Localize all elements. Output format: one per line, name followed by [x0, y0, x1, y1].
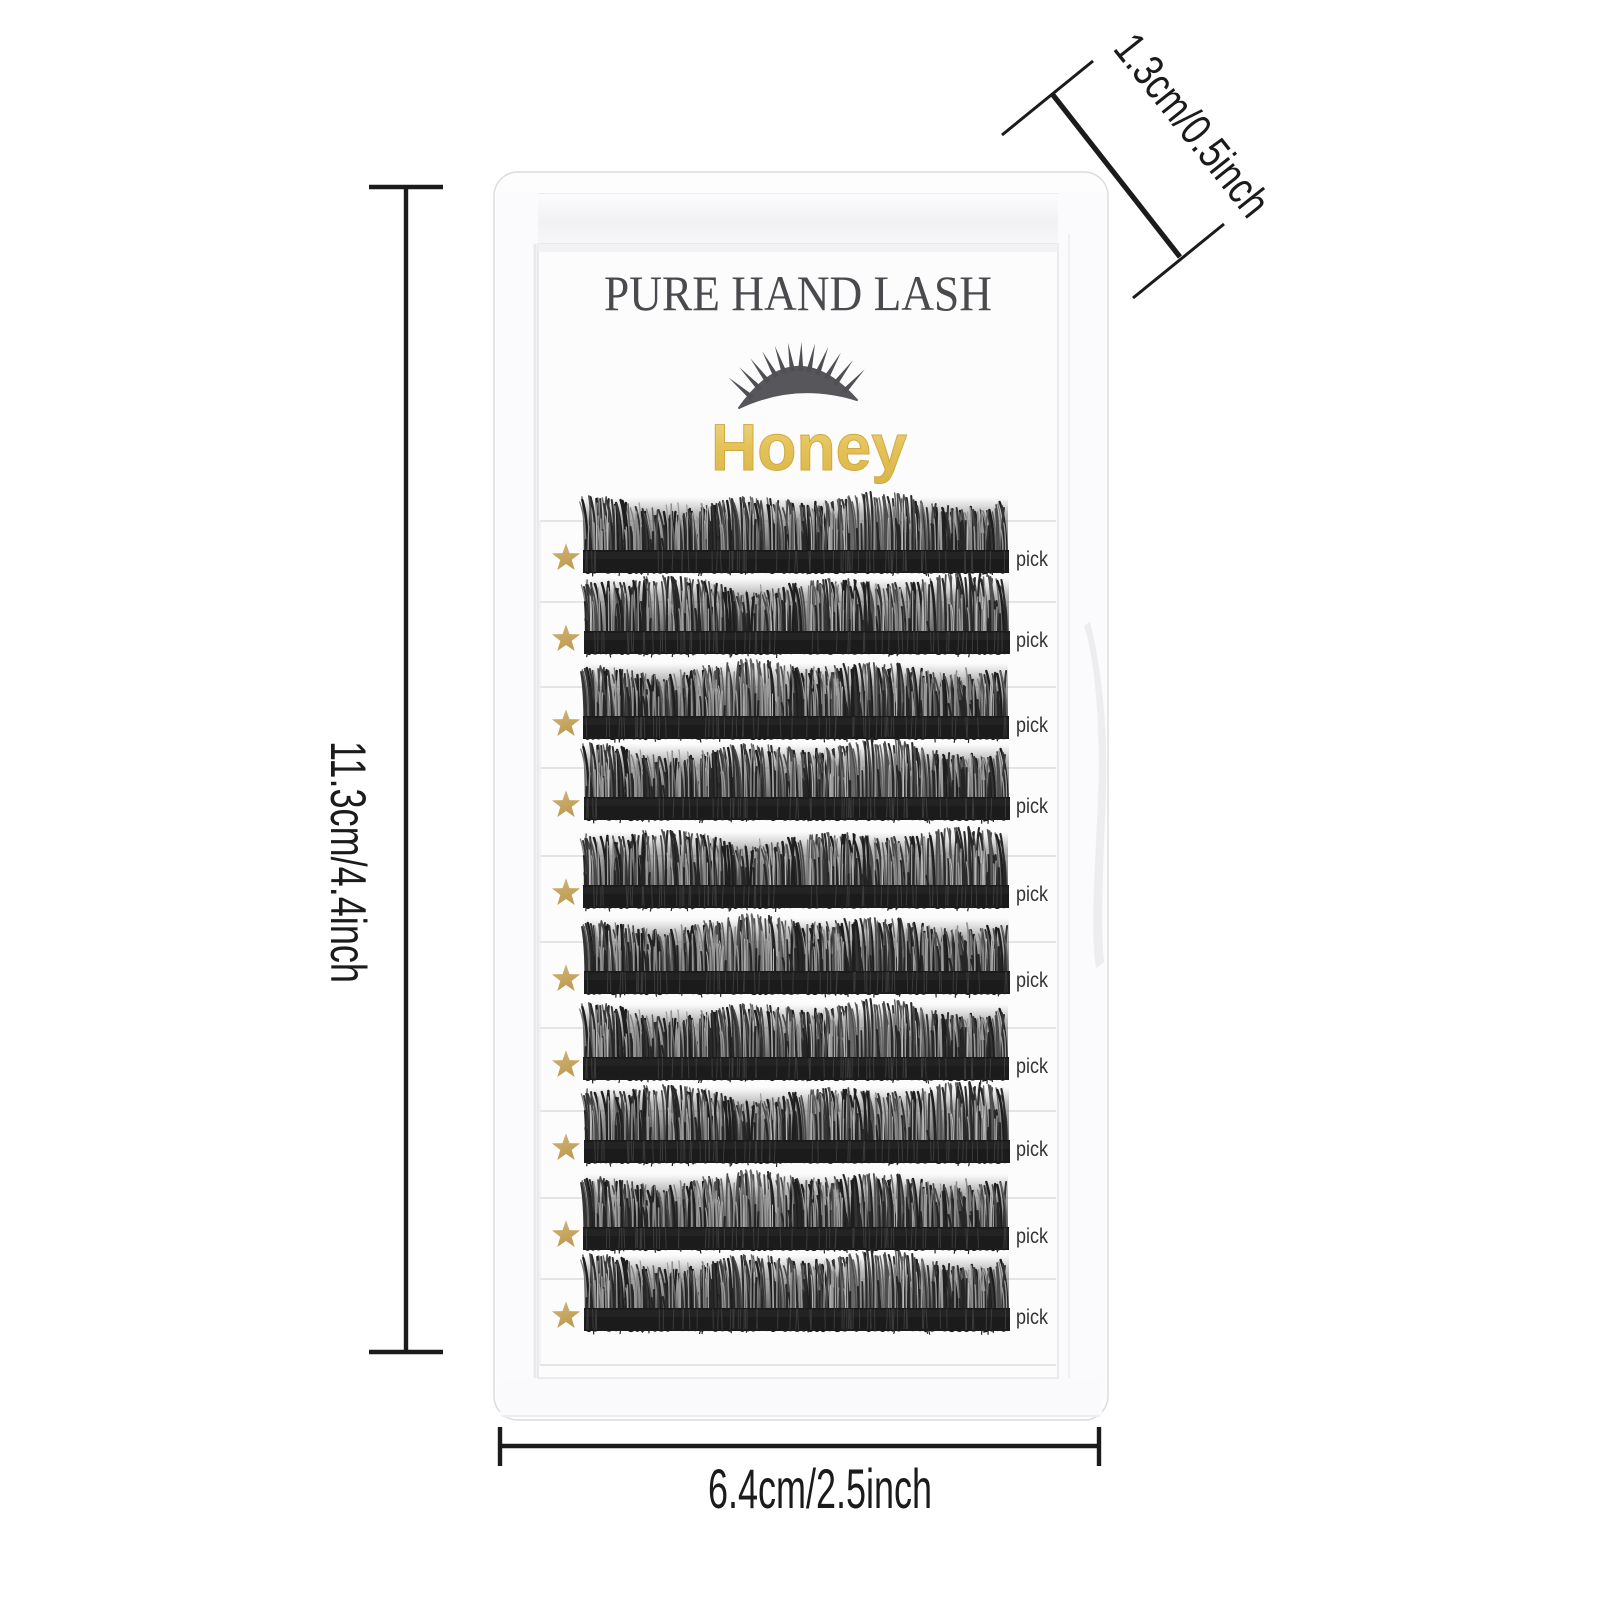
svg-text:Honey: Honey — [711, 410, 907, 484]
svg-text:pick: pick — [1016, 629, 1048, 652]
svg-text:11.3cm/4.4inch: 11.3cm/4.4inch — [320, 741, 376, 983]
svg-text:pick: pick — [1016, 1138, 1048, 1161]
svg-text:6.4cm/2.5inch: 6.4cm/2.5inch — [708, 1457, 932, 1520]
svg-text:pick: pick — [1016, 714, 1048, 737]
svg-text:pick: pick — [1016, 969, 1048, 992]
svg-text:pick: pick — [1016, 795, 1048, 818]
svg-text:PURE HAND LASH: PURE HAND LASH — [604, 265, 992, 321]
svg-text:pick: pick — [1016, 548, 1048, 571]
svg-text:pick: pick — [1016, 1306, 1048, 1329]
svg-text:pick: pick — [1016, 1055, 1048, 1078]
svg-text:pick: pick — [1016, 883, 1048, 906]
svg-text:pick: pick — [1016, 1225, 1048, 1248]
